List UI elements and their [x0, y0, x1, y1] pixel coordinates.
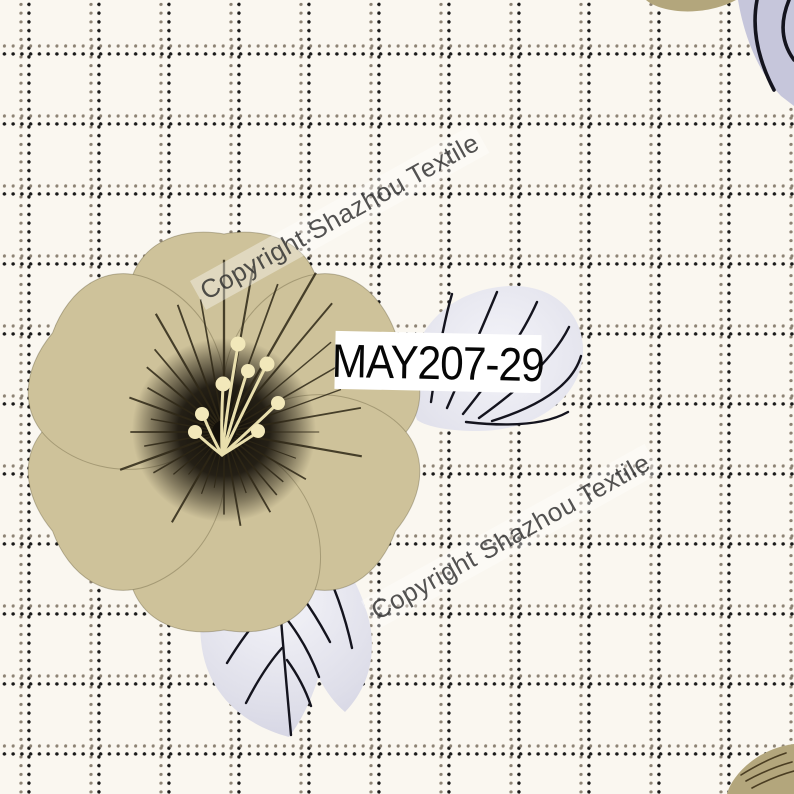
floral-motifs — [0, 0, 794, 794]
design-code-text: MAY207-29 — [331, 332, 544, 391]
leaf-top-right — [738, 0, 794, 106]
textile-swatch: Copyright Shazhou Textile Copyright Shaz… — [0, 0, 794, 794]
petal-fragment-top — [646, 0, 736, 11]
petal-fragment-bottom-right — [727, 744, 794, 794]
design-code-label: MAY207-29 — [334, 331, 541, 393]
